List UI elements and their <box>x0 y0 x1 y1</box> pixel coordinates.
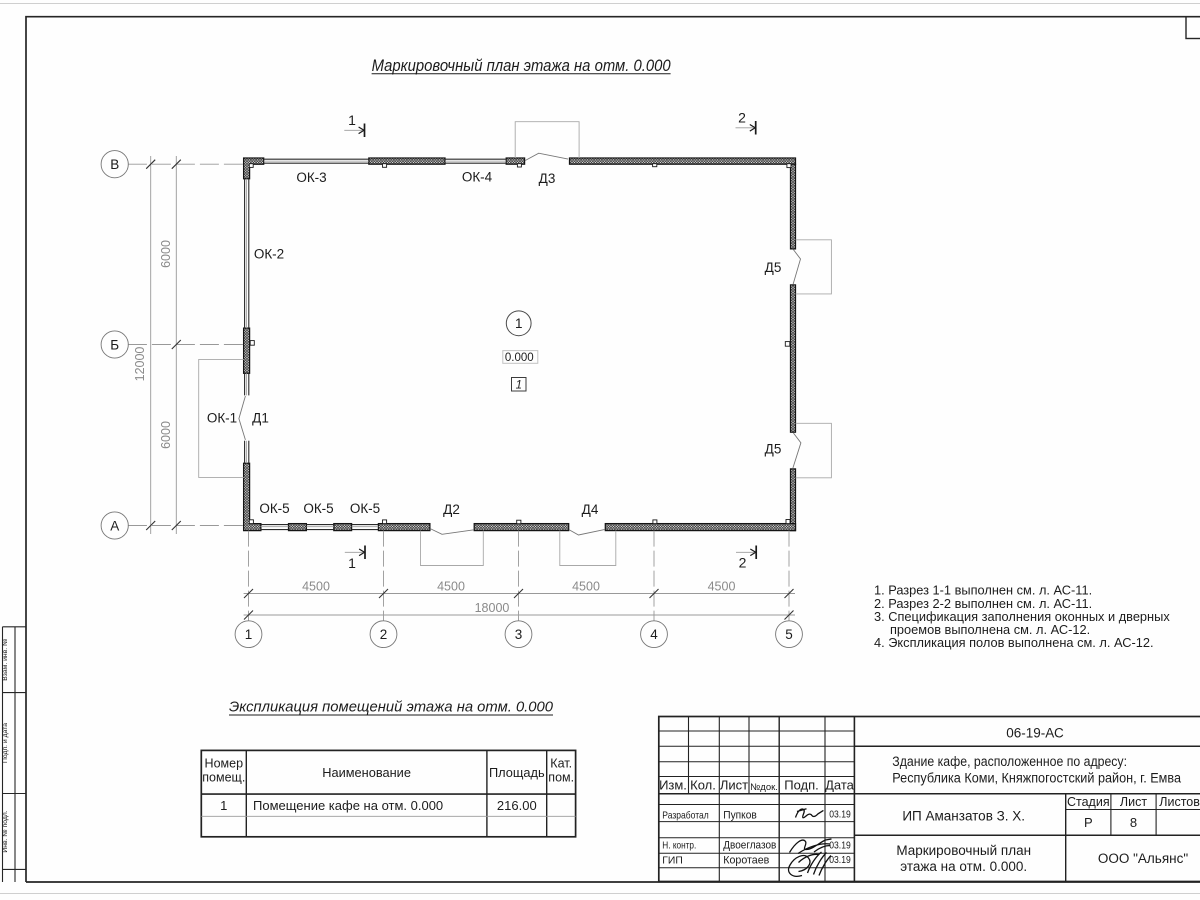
svg-text:1: 1 <box>515 316 523 331</box>
svg-text:пом.: пом. <box>548 770 574 784</box>
svg-text:ОК-4: ОК-4 <box>462 169 493 184</box>
svg-text:2: 2 <box>738 110 746 126</box>
svg-text:0.000: 0.000 <box>505 352 534 364</box>
svg-text:ГИП: ГИП <box>662 854 683 866</box>
svg-text:18000: 18000 <box>475 601 510 615</box>
svg-text:Маркировочный план этажа на от: Маркировочный план этажа на отм. 0.000 <box>372 56 671 75</box>
svg-text:Лист: Лист <box>1120 795 1147 809</box>
svg-text:2: 2 <box>380 627 388 642</box>
svg-text:Листов: Листов <box>1159 795 1200 809</box>
svg-text:1: 1 <box>348 555 356 571</box>
svg-text:1: 1 <box>348 112 356 128</box>
svg-text:06-19-АС: 06-19-АС <box>1006 726 1064 741</box>
svg-text:6000: 6000 <box>159 240 173 268</box>
svg-text:ОК-1: ОК-1 <box>207 410 237 425</box>
svg-text:Площадь: Площадь <box>489 765 545 780</box>
svg-text:В: В <box>110 157 119 172</box>
svg-text:Коротаев: Коротаев <box>723 854 769 866</box>
svg-text:ОК-3: ОК-3 <box>296 170 326 185</box>
svg-text:4: 4 <box>650 627 658 642</box>
svg-text:А: А <box>110 518 119 533</box>
svg-text:помещ.: помещ. <box>202 770 245 784</box>
svg-text:Двоеглазов: Двоеглазов <box>723 840 776 852</box>
svg-text:Д5: Д5 <box>765 441 782 456</box>
svg-text:Кол.: Кол. <box>690 778 716 793</box>
svg-text:1: 1 <box>220 798 227 813</box>
svg-text:4500: 4500 <box>708 580 736 594</box>
svg-text:216.00: 216.00 <box>497 798 537 813</box>
svg-text:3: 3 <box>515 627 523 642</box>
svg-text:этажа на отм. 0.000.: этажа на отм. 0.000. <box>900 859 1027 874</box>
svg-text:Д3: Д3 <box>539 171 556 186</box>
svg-text:03.19: 03.19 <box>829 841 851 852</box>
svg-text:ОК-2: ОК-2 <box>254 246 284 261</box>
svg-text:Взам. инв. №: Взам. инв. № <box>2 639 9 681</box>
svg-text:Экспликация помещений этажа на: Экспликация помещений этажа на отм. 0.00… <box>229 700 553 716</box>
svg-text:4. Экспликация полов выполнена: 4. Экспликация полов выполнена см. л. АС… <box>874 635 1154 650</box>
svg-text:ООО "Альянс": ООО "Альянс" <box>1098 851 1188 866</box>
svg-text:ОК-5: ОК-5 <box>303 501 333 516</box>
svg-text:Пупков: Пупков <box>723 810 757 822</box>
svg-text:Д2: Д2 <box>443 502 460 517</box>
svg-text:Дата: Дата <box>825 778 855 793</box>
svg-text:03.19: 03.19 <box>829 810 851 821</box>
svg-text:1: 1 <box>516 380 522 392</box>
svg-text:4500: 4500 <box>437 580 465 594</box>
svg-text:Стадия: Стадия <box>1067 795 1110 809</box>
svg-text:№док.: №док. <box>750 782 778 793</box>
svg-text:4500: 4500 <box>572 580 600 594</box>
svg-text:8: 8 <box>1130 815 1137 830</box>
svg-text:Д4: Д4 <box>582 502 599 517</box>
svg-text:Изм.: Изм. <box>659 778 687 793</box>
svg-text:1: 1 <box>245 627 253 642</box>
svg-text:12000: 12000 <box>133 347 147 382</box>
svg-text:Республика Коми, Княжпогостски: Республика Коми, Княжпогостский район, г… <box>892 771 1181 786</box>
svg-text:Помещение кафе на отм. 0.000: Помещение кафе на отм. 0.000 <box>253 798 443 813</box>
svg-text:2: 2 <box>739 555 747 571</box>
svg-text:Д1: Д1 <box>252 410 269 425</box>
svg-text:Здание кафе, расположенное по: Здание кафе, расположенное по адресу: <box>892 754 1127 769</box>
svg-text:Кат.: Кат. <box>550 756 572 770</box>
svg-text:Б: Б <box>110 337 119 352</box>
svg-text:ИП Аманзатов З. Х.: ИП Аманзатов З. Х. <box>902 809 1025 824</box>
svg-text:4500: 4500 <box>302 580 330 594</box>
svg-text:5: 5 <box>785 627 793 642</box>
svg-text:Д5: Д5 <box>765 260 782 275</box>
svg-text:Лист: Лист <box>720 778 748 793</box>
svg-text:Н. контр.: Н. контр. <box>662 840 696 852</box>
svg-text:Р: Р <box>1084 815 1093 830</box>
svg-text:ОК-5: ОК-5 <box>350 501 380 516</box>
svg-text:ОК-5: ОК-5 <box>259 501 289 516</box>
svg-text:Подп.: Подп. <box>784 778 819 793</box>
svg-text:Инв. № подл.: Инв. № подл. <box>2 810 9 852</box>
svg-text:Наименование: Наименование <box>322 765 411 780</box>
svg-text:Подп. и дата: Подп. и дата <box>2 723 9 763</box>
svg-text:03.19: 03.19 <box>829 855 851 866</box>
svg-text:Разработал: Разработал <box>662 810 709 822</box>
svg-text:6000: 6000 <box>159 421 173 449</box>
svg-text:Маркировочный план: Маркировочный план <box>896 843 1031 858</box>
svg-text:Номер: Номер <box>205 756 244 770</box>
